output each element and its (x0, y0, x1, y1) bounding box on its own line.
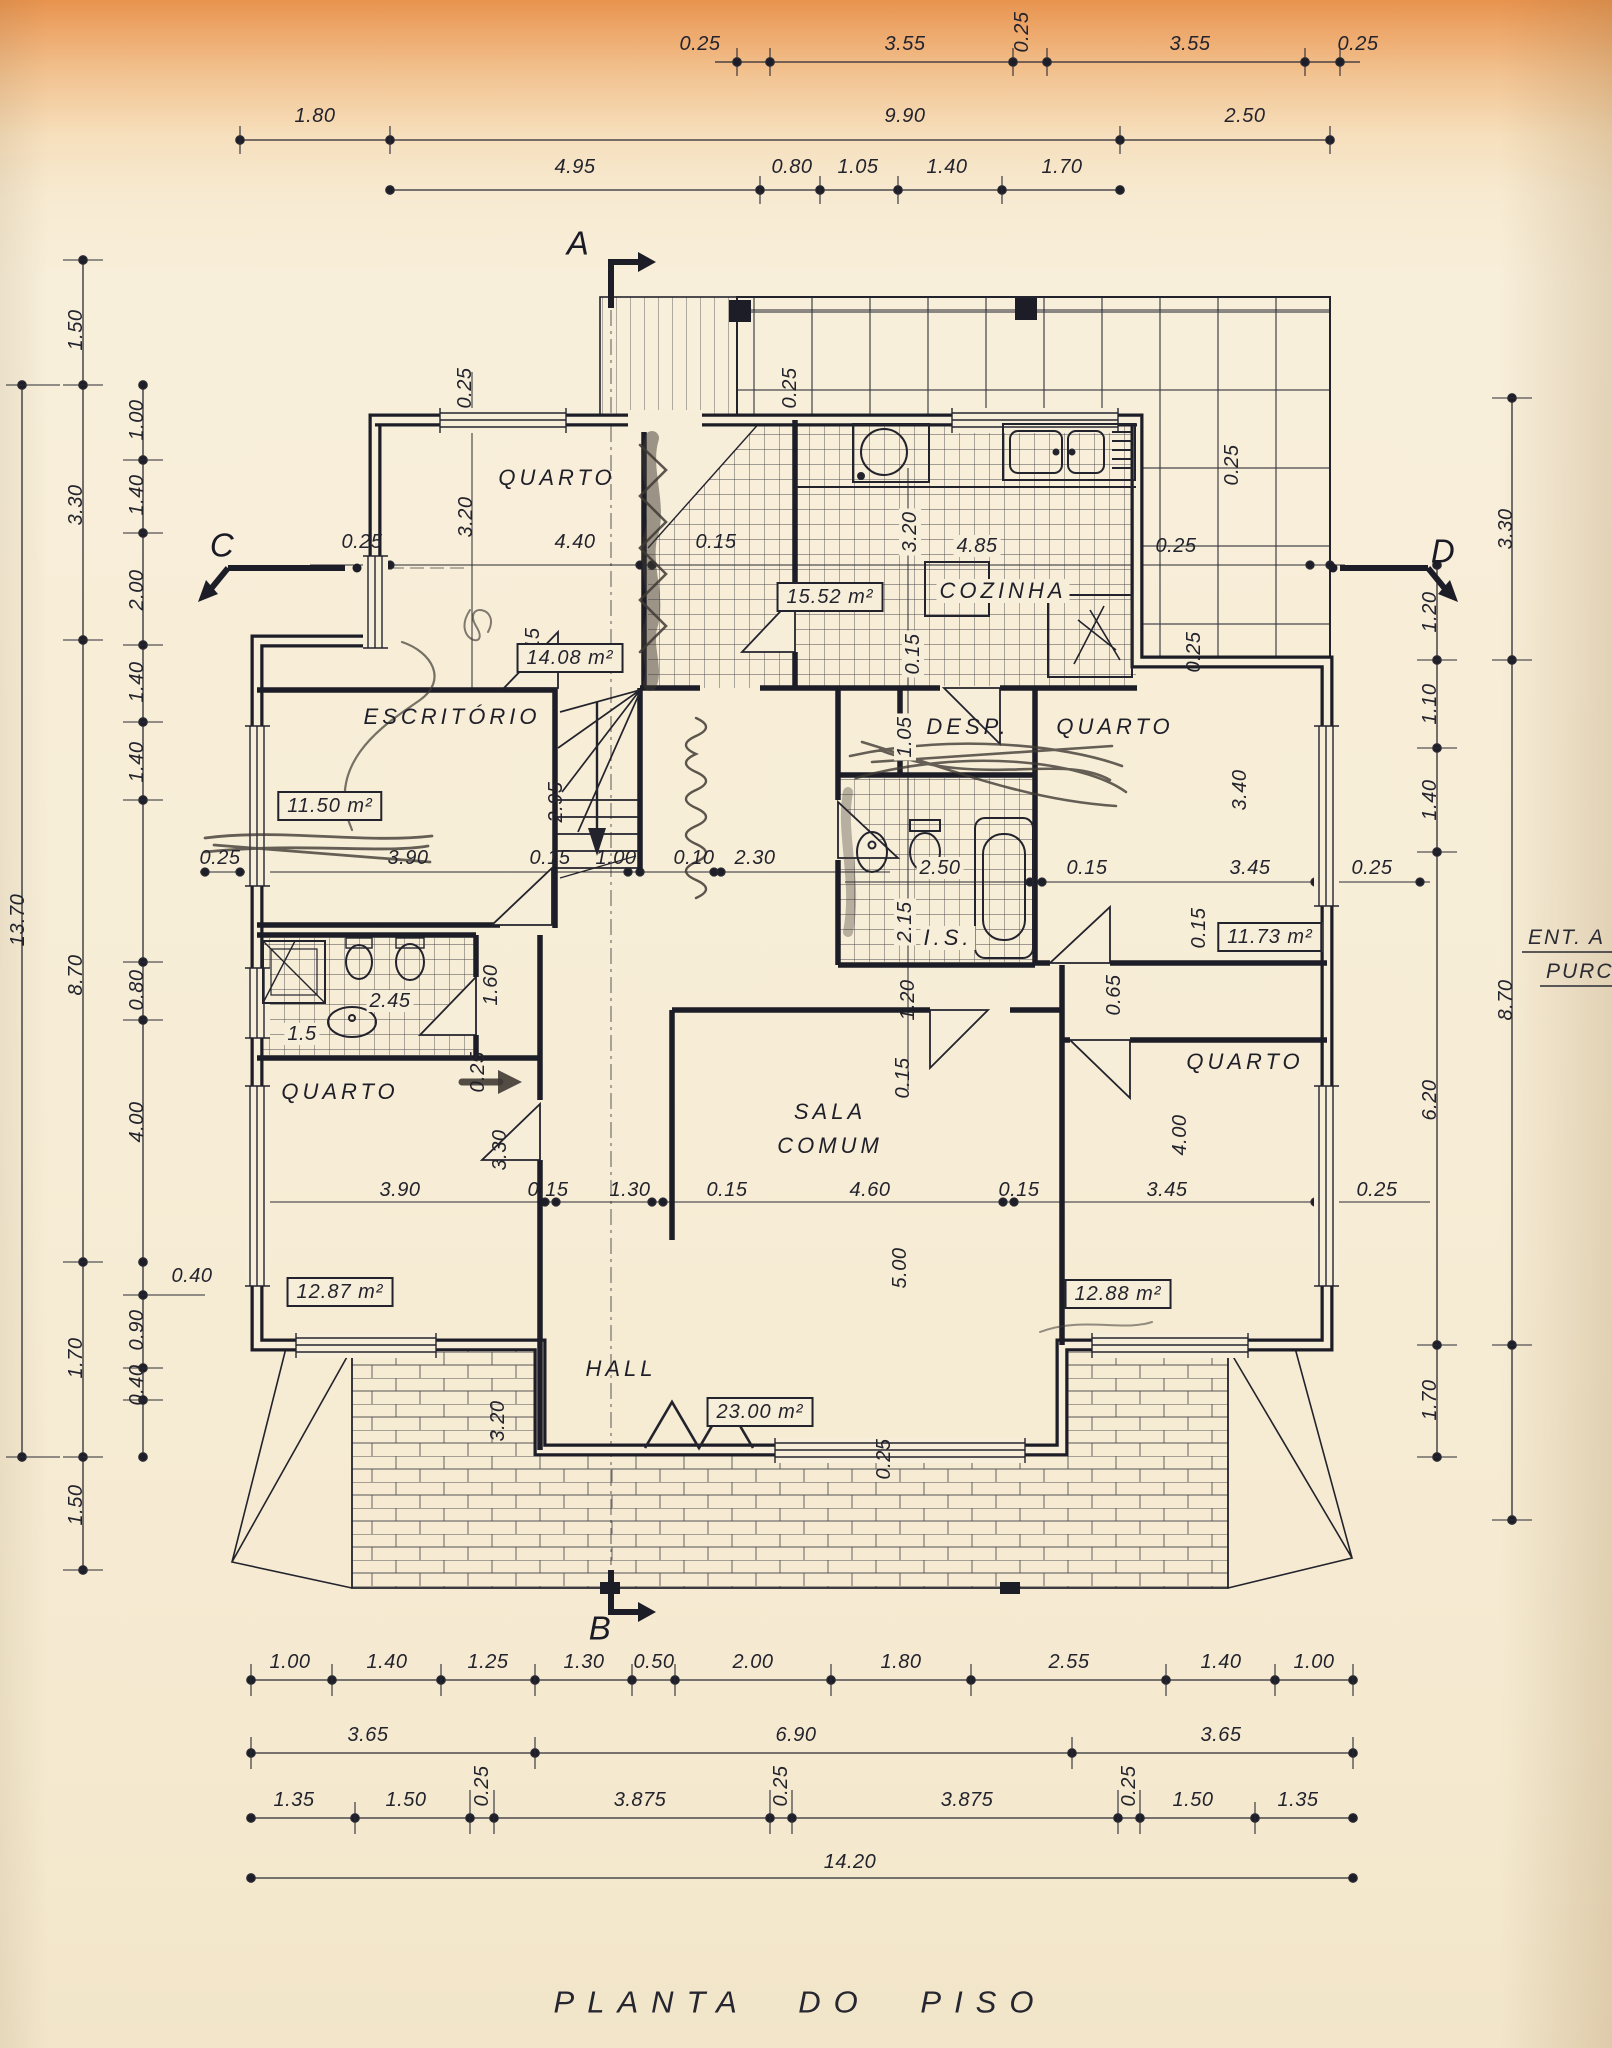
dim-label: 4.85 (954, 535, 1001, 557)
dim-label: 0.25 (680, 34, 721, 54)
dim-label: 3.65 (348, 1725, 389, 1745)
section-marker-a: A (567, 227, 590, 260)
dim-label: 0.25 (1338, 34, 1379, 54)
dim-label: 3.875 (941, 1790, 994, 1810)
dim-label: 1.40 (1420, 780, 1440, 821)
room-label-hall: HALL (585, 1358, 656, 1380)
room-label-quarto-tl: QUARTO (498, 467, 615, 489)
dim-label: 1.70 (66, 1338, 86, 1379)
dim-label: 1.35 (1278, 1790, 1319, 1810)
area-box-cozinha: 15.52 m² (777, 582, 884, 612)
dim-label: 1.20 (1420, 592, 1440, 633)
dim-label: 0.25 (1357, 1180, 1398, 1200)
area-box-quarto-br: 12.88 m² (1065, 1279, 1172, 1309)
section-marker-b: B (589, 1612, 612, 1645)
dim-label: 1.20 (898, 980, 918, 1021)
dim-label: 5.00 (890, 1248, 910, 1289)
dim-label: 0.15 (696, 532, 737, 552)
dim-label: 3.90 (388, 848, 429, 868)
dim-label: 2.30 (735, 848, 776, 868)
dim-label: 0.50 (634, 1652, 675, 1672)
dim-label: 3.30 (66, 485, 86, 526)
section-marker-d: D (1431, 535, 1455, 568)
dim-label: 1.40 (1201, 1652, 1242, 1672)
room-label-escritorio: ESCRITÓRIO (364, 706, 541, 728)
door-escritorio (492, 868, 552, 925)
dim-label: 1.80 (295, 106, 336, 126)
room-label-quarto-br: QUARTO (1186, 1051, 1303, 1073)
dim-label: 14.20 (824, 1852, 877, 1872)
area-box-quarto-tl: 14.08 m² (517, 643, 624, 673)
dim-label: 1.40 (127, 662, 147, 703)
dim-label: 0.15 (1067, 858, 1108, 878)
dim-label: 0.15 (893, 1058, 913, 1099)
dim-label: 4.00 (127, 1102, 147, 1143)
dim-label: 3.45 (1147, 1180, 1188, 1200)
dim-label: 1.50 (386, 1790, 427, 1810)
dim-label: 1.80 (881, 1652, 922, 1672)
dim-label: 0.25 (780, 368, 800, 409)
dim-label: 3.20 (899, 509, 921, 556)
room-label-sala-line2: COMUM (777, 1135, 883, 1157)
dim-label: 1.30 (610, 1180, 651, 1200)
area-box-sala: 23.00 m² (707, 1397, 814, 1427)
floor-plan-page: 0.25 3.55 0.25 3.55 0.25 1.80 9.90 2.50 … (0, 0, 1612, 2048)
room-label-cozinha: COZINHA (937, 579, 1070, 603)
dim-label: 0.25 (771, 1766, 791, 1807)
edge-note-line2: PURC (1546, 960, 1612, 984)
dim-label: 0.15 (528, 1180, 569, 1200)
dim-label: 2.95 (546, 782, 566, 823)
dim-label: 1.00 (127, 400, 147, 441)
dim-label: 0.25 (1222, 445, 1242, 486)
dim-label: 1.40 (127, 742, 147, 783)
dim-label: 4.60 (850, 1180, 891, 1200)
dim-label: 1.70 (1420, 1380, 1440, 1421)
dim-label: 3.20 (456, 497, 476, 538)
hand-arrow-icon (498, 1070, 522, 1094)
area-box-quarto-tr: 11.73 m² (1217, 922, 1322, 952)
dim-label: 2.50 (1225, 106, 1266, 126)
dim-label: 0.40 (172, 1266, 213, 1286)
dim-label: 1.50 (66, 310, 86, 351)
dim-label: 8.70 (1496, 980, 1516, 1021)
room-label-quarto-bl: QUARTO (281, 1081, 398, 1103)
area-box-quarto-bl: 12.87 m² (287, 1277, 394, 1307)
dim-label: 13.70 (8, 894, 28, 947)
dim-label: 3.30 (490, 1130, 510, 1171)
dim-label: 2.50 (917, 857, 964, 879)
dim-label: 1.35 (274, 1790, 315, 1810)
dim-label: 3.875 (614, 1790, 667, 1810)
dim-label: 0.40 (127, 1365, 147, 1406)
dim-label: 2.55 (1049, 1652, 1090, 1672)
dim-label: 0.25 (1119, 1766, 1139, 1807)
door-sala (930, 1010, 988, 1068)
dim-label: 0.90 (127, 1310, 147, 1351)
dim-label: 0.25 (874, 1439, 894, 1480)
dim-label: 3.40 (1230, 770, 1250, 811)
room-label-quarto-tr: QUARTO (1056, 716, 1173, 738)
dim-label: 1.40 (367, 1652, 408, 1672)
dim-label: 0.80 (772, 157, 813, 177)
dim-label: 0.25 (200, 848, 241, 868)
dim-label: 1.00 (596, 848, 637, 868)
page-title: PLANTA DO PISO (554, 1987, 1047, 2018)
dim-label: 4.40 (555, 532, 596, 552)
room-label-sala-line1: SALA (794, 1101, 866, 1123)
dim-label: 3.20 (488, 1401, 508, 1442)
dim-label: 3.55 (885, 34, 926, 54)
dim-label: 6.20 (1420, 1080, 1440, 1121)
dim-label: 3.45 (1230, 858, 1271, 878)
dim-label: 0.25 (1352, 858, 1393, 878)
dim-label: 6.90 (776, 1725, 817, 1745)
dim-label: 0.65 (1104, 975, 1124, 1016)
door-quarto-tr (1050, 907, 1110, 963)
dim-label: 1.05 (894, 714, 916, 761)
dim-label: 2.00 (127, 570, 147, 611)
area-box-escritorio: 11.50 m² (277, 791, 382, 821)
dim-label: 1.25 (468, 1652, 509, 1672)
dim-label: 1.50 (1173, 1790, 1214, 1810)
dim-label: 1.00 (270, 1652, 311, 1672)
dim-label: 0.25 (472, 1766, 492, 1807)
door-quarto-br (1070, 1040, 1130, 1098)
dim-label: 3.90 (380, 1180, 421, 1200)
terrace-bottom-brick-floor (232, 1348, 1352, 1594)
dim-label: 2.45 (367, 990, 414, 1012)
section-marker-c: C (210, 529, 234, 562)
dim-label: 1.05 (838, 157, 879, 177)
dim-label: 3.55 (1170, 34, 1211, 54)
room-label-despensa: DESP. (926, 716, 1009, 738)
dim-label: 4.95 (555, 157, 596, 177)
dim-label: 0.15 (1189, 908, 1209, 949)
dim-label: 0.25 (1156, 536, 1197, 556)
dim-label: 9.90 (885, 106, 926, 126)
edge-note-line1: ENT. A (1528, 926, 1605, 950)
dim-label: 0.15 (707, 1180, 748, 1200)
dim-label: 3.65 (1201, 1725, 1242, 1745)
dim-label: 8.70 (66, 955, 86, 996)
dim-label: 4.00 (1170, 1115, 1190, 1156)
dim-label: 0.25 (342, 532, 383, 552)
dim-label: 2.15 (894, 899, 916, 946)
dim-label: 1.10 (1420, 684, 1440, 725)
dim-label: 1.60 (481, 965, 501, 1006)
dim-label: 0.15 (530, 848, 571, 868)
dim-label: 0.25 (1012, 12, 1032, 53)
dim-label: 1.40 (127, 475, 147, 516)
dim-label: 0.80 (127, 970, 147, 1011)
dim-label: 0.25 (455, 368, 475, 409)
dim-label: 1.70 (1042, 157, 1083, 177)
dim-label: 3.30 (1496, 509, 1516, 550)
dim-label: 1.40 (927, 157, 968, 177)
dim-label: 1.30 (564, 1652, 605, 1672)
room-label-wc-right: I.S. (920, 926, 975, 950)
dim-label: 0.25 (1184, 632, 1204, 673)
room-label-wc-left: 1.5 (284, 1023, 319, 1045)
dim-label: 0.10 (674, 848, 715, 868)
dim-label: 1.00 (1294, 1652, 1335, 1672)
dim-label: 2.00 (733, 1652, 774, 1672)
dim-label: 0.25 (468, 1052, 488, 1093)
dim-label: 1.50 (66, 1485, 86, 1526)
dim-label: 0.15 (999, 1180, 1040, 1200)
dim-label: 0.15 (902, 631, 924, 678)
